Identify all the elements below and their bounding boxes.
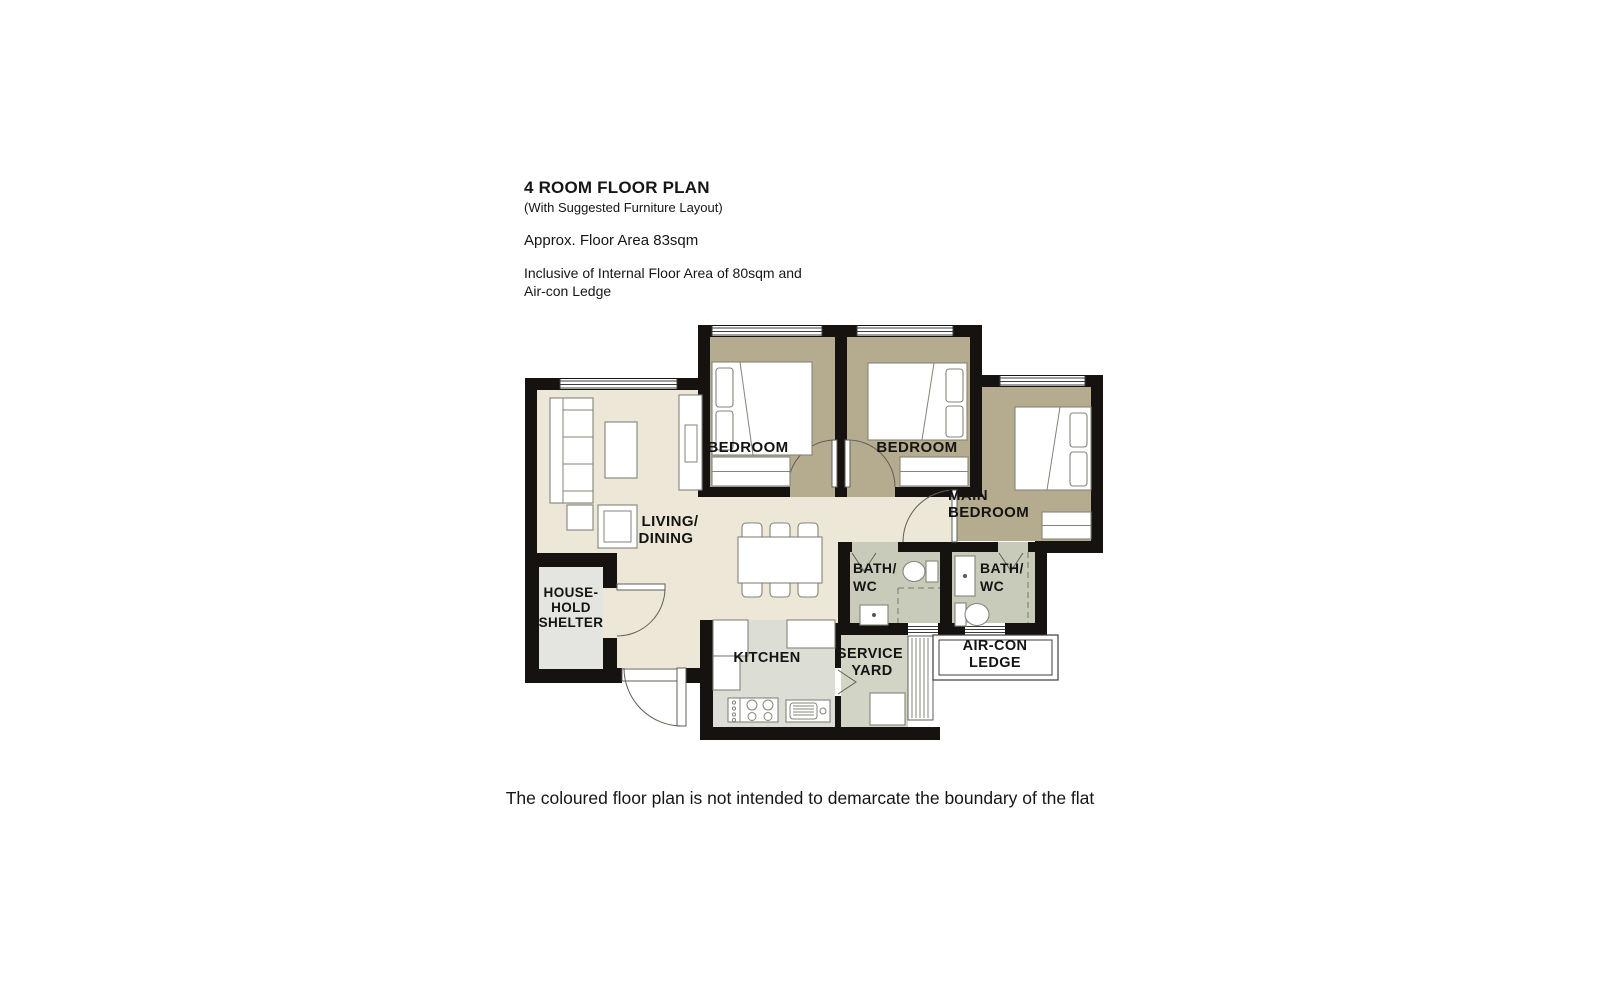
label-kitchen: KITCHEN — [733, 650, 800, 666]
label-bedroom-1: BEDROOM — [707, 439, 788, 456]
label-main-bedroom-2: BEDROOM — [948, 504, 1029, 521]
label-shelter-3: SHELTER — [539, 615, 604, 630]
wall-segment — [710, 487, 790, 497]
label-service-2: YARD — [851, 663, 892, 679]
pillow — [946, 406, 963, 437]
shelter-door-gap — [603, 588, 617, 638]
wardrobe — [1042, 512, 1091, 539]
label-shelter-1: HOUSE- — [544, 585, 599, 600]
window-living — [560, 379, 677, 389]
label-shelter-2: HOLD — [551, 600, 591, 615]
wall-segment — [940, 542, 952, 635]
wardrobe — [900, 457, 968, 486]
label-living-2: DINING — [639, 530, 694, 547]
disclaimer-text: The coloured floor plan is not intended … — [0, 788, 1600, 809]
pillow — [1070, 452, 1087, 486]
sofa — [550, 398, 593, 503]
railing — [908, 636, 933, 720]
wall-segment — [700, 727, 940, 740]
wall-segment — [835, 696, 841, 727]
bath1-door-gap — [852, 542, 898, 552]
label-bedroom-2: BEDROOM — [876, 439, 957, 456]
toilet — [903, 561, 938, 582]
wall-segment — [700, 620, 713, 740]
wall-segment — [525, 378, 537, 553]
bath2-door-gap — [998, 542, 1028, 552]
window-bath-2 — [965, 624, 1005, 634]
basin — [860, 605, 888, 625]
label-living-1: LIVING/ — [642, 513, 699, 530]
counter — [787, 620, 835, 648]
dining-table — [738, 537, 822, 583]
wardrobe — [712, 457, 790, 486]
window-bath-1 — [908, 624, 938, 634]
wall-segment — [1035, 542, 1047, 635]
armchair — [598, 505, 637, 548]
pillow — [946, 369, 963, 402]
label-service-1: SERVICE — [837, 646, 903, 662]
door-main-entrance — [622, 668, 686, 726]
side-table — [567, 505, 593, 530]
wall-segment — [1005, 623, 1047, 635]
label-bath1-2: WC — [853, 578, 877, 594]
tv-console — [679, 395, 702, 490]
toilet — [955, 603, 989, 626]
window-bedroom-2 — [857, 326, 953, 336]
basin — [955, 556, 975, 596]
wall-segment — [838, 542, 850, 635]
pillow — [716, 368, 733, 407]
wall-segment — [970, 337, 982, 497]
label-aircon-2: LEDGE — [969, 655, 1021, 671]
pillow — [1070, 413, 1087, 447]
label-bath1-1: BATH/ — [853, 560, 897, 576]
stove — [728, 698, 778, 722]
coffee-table — [605, 422, 637, 478]
wall-segment — [1091, 375, 1103, 553]
washing-machine — [870, 693, 905, 725]
floor-plan-svg: BEDROOM BEDROOM MAIN BEDROOM LIVING/ DIN… — [0, 0, 1600, 1000]
label-bath2-2: WC — [980, 578, 1004, 594]
window-main-bedroom — [1000, 376, 1085, 386]
window-bedroom-1 — [712, 326, 822, 336]
label-aircon-1: AIR-CON — [963, 638, 1028, 654]
wall-segment — [617, 668, 622, 683]
sink — [786, 700, 830, 722]
label-main-bedroom-1: MAIN — [948, 487, 988, 504]
label-bath2-1: BATH/ — [980, 560, 1024, 576]
dining-table-set — [738, 523, 822, 597]
